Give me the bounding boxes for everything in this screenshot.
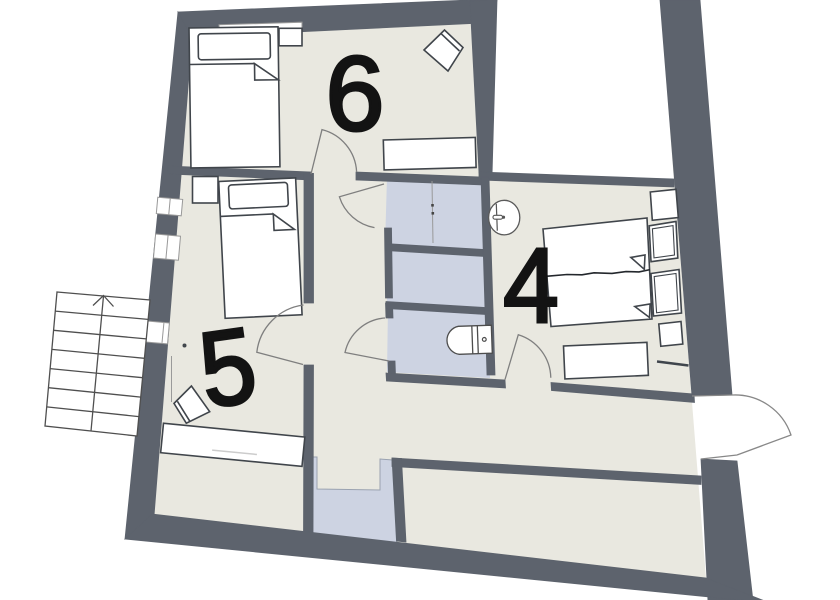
svg-text:6: 6 [326,35,385,153]
svg-text:4: 4 [503,226,559,344]
